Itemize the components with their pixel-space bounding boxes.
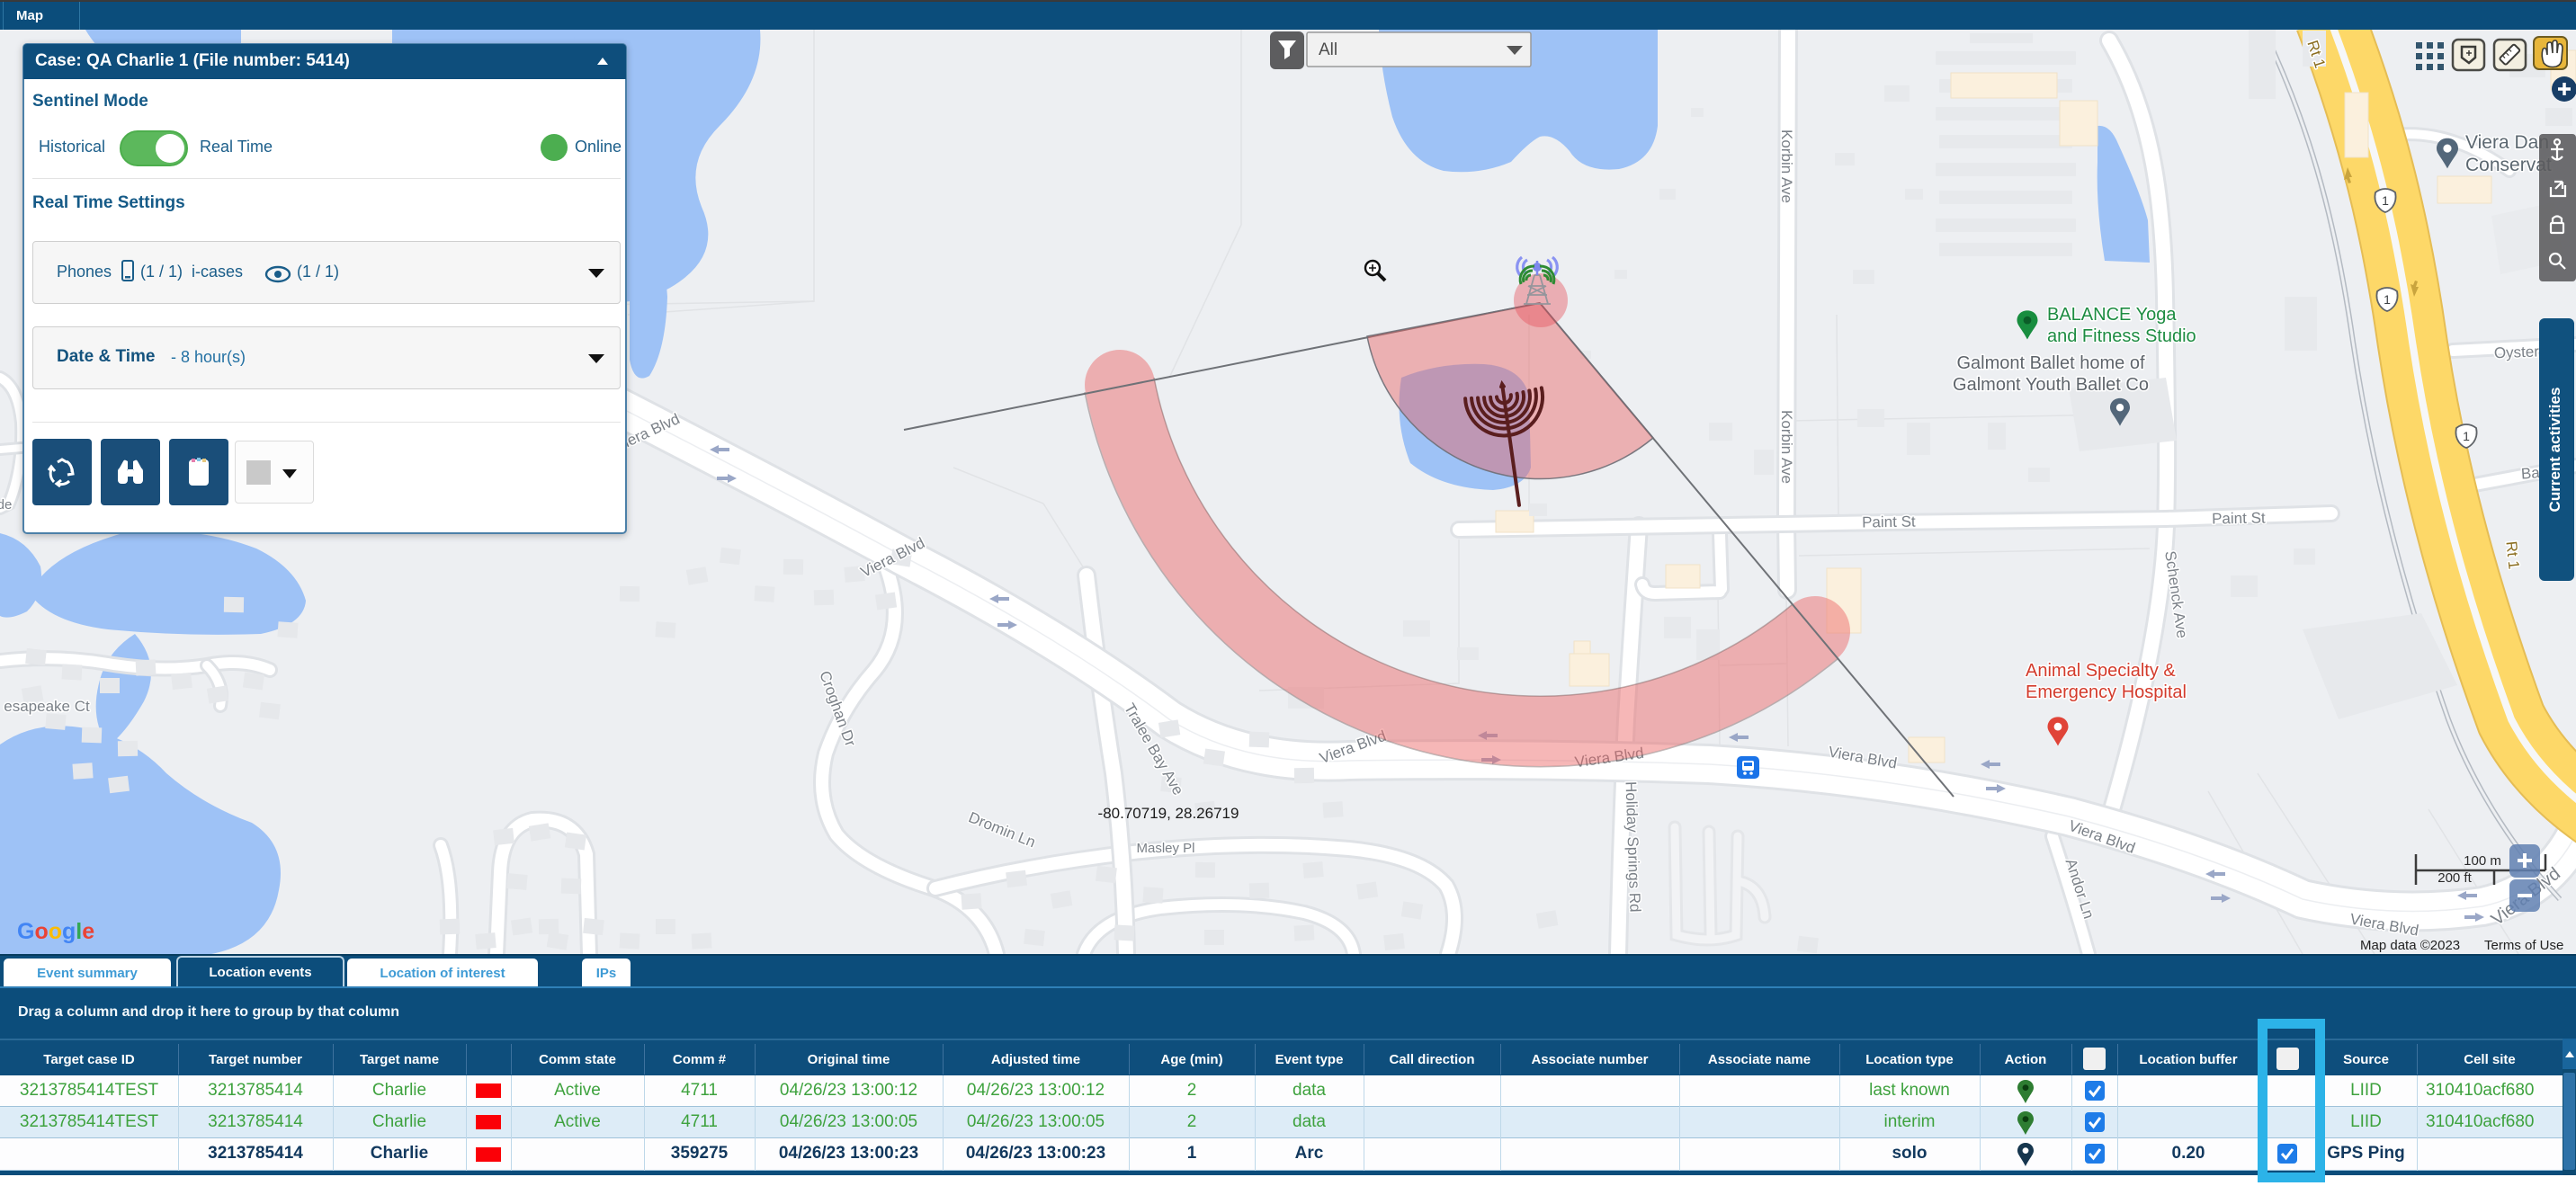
svg-text:Paint St: Paint St xyxy=(2212,509,2266,527)
svg-text:Emergency Hospital: Emergency Hospital xyxy=(2026,682,2187,702)
svg-text:Animal Specialty &: Animal Specialty & xyxy=(2026,661,2176,681)
svg-text:-80.70719, 28.26719: -80.70719, 28.26719 xyxy=(1098,805,1239,822)
svg-text:Korbin Ave: Korbin Ave xyxy=(1778,129,1795,203)
svg-text:and Fitness Studio: and Fitness Studio xyxy=(2047,326,2196,346)
svg-text:Korbin Ave: Korbin Ave xyxy=(1778,410,1795,484)
svg-text:Galmont Youth Ballet Co: Galmont Youth Ballet Co xyxy=(1953,375,2149,395)
svg-text:1: 1 xyxy=(2463,429,2470,443)
svg-text:100 m: 100 m xyxy=(2464,853,2501,869)
svg-text:BALANCE Yoga: BALANCE Yoga xyxy=(2047,305,2177,325)
svg-text:1: 1 xyxy=(2382,193,2389,208)
svg-text:esapeake Ct: esapeake Ct xyxy=(4,698,90,715)
svg-text:Paint St: Paint St xyxy=(1862,513,1916,531)
svg-text:Map data ©2023: Map data ©2023 xyxy=(2360,938,2460,953)
svg-text:Masley Pl: Masley Pl xyxy=(1136,841,1194,856)
svg-text:Conservat: Conservat xyxy=(2465,155,2552,175)
svg-text:Current activities: Current activities xyxy=(2546,388,2563,513)
svg-text:All: All xyxy=(1319,40,1337,59)
svg-text:Viera Dan: Viera Dan xyxy=(2465,132,2549,153)
svg-text:de: de xyxy=(0,497,12,513)
svg-text:Rt 1: Rt 1 xyxy=(2502,540,2522,570)
svg-text:Google: Google xyxy=(17,919,94,944)
svg-text:Galmont Ballet home of: Galmont Ballet home of xyxy=(1957,353,2145,373)
svg-text:200 ft: 200 ft xyxy=(2437,870,2472,886)
svg-text:Terms of Use: Terms of Use xyxy=(2484,938,2563,953)
svg-text:1: 1 xyxy=(2384,292,2391,307)
